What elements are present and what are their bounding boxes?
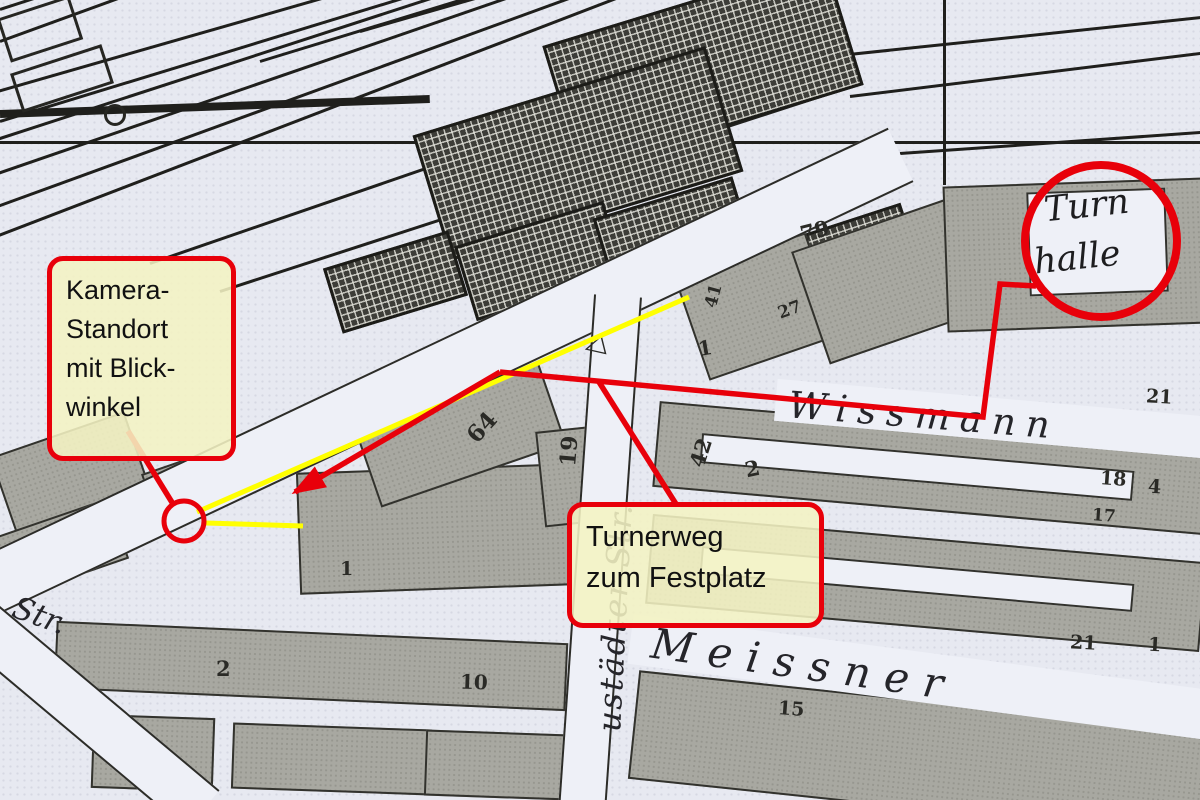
turnerweg-leader-line: [599, 382, 676, 504]
note-line: mit Blick-: [66, 349, 225, 388]
turnerweg-note: Turnerweg zum Festplatz: [567, 502, 824, 628]
turnhalle-connector-line: [500, 284, 1036, 417]
note-line: Standort: [66, 310, 225, 349]
note-line: winkel: [66, 388, 225, 427]
turnhalle-circle: [1025, 165, 1177, 317]
annotated-historical-map: Wissmann Meissner ustädter Str. Str. Tur…: [0, 0, 1200, 800]
view-direction-arrow: [295, 372, 500, 492]
note-line: Turnerweg: [586, 517, 819, 558]
note-line: Kamera-: [66, 271, 225, 310]
camera-position-circle: [164, 501, 204, 541]
note-line: zum Festplatz: [586, 558, 819, 599]
view-angle-line-lower: [206, 523, 303, 526]
camera-position-note: Kamera- Standort mit Blick- winkel: [47, 256, 236, 461]
